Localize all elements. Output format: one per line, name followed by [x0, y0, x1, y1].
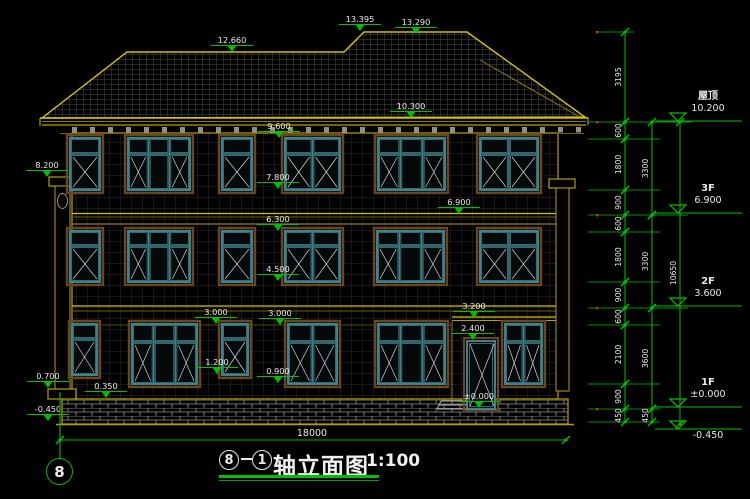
dim-ref-dot [596, 31, 598, 33]
elevation-value: 10.300 [397, 101, 426, 111]
dim-value-inner: 3195 [614, 67, 623, 86]
storey-elevation: 6.900 [694, 195, 721, 206]
elevation-value: 2.400 [461, 323, 484, 333]
elevation-value: 0.700 [36, 371, 59, 381]
elevation-drawing-canvas: 3195600180090060018009006002100900450330… [0, 0, 750, 499]
window [502, 321, 545, 387]
window [374, 228, 447, 285]
window-frame [378, 138, 445, 190]
storey-name: 1F [701, 377, 715, 388]
window [67, 228, 103, 285]
window [285, 321, 340, 387]
downspout-left [55, 186, 70, 389]
window [477, 228, 541, 285]
elevation-value: 3.000 [204, 307, 227, 317]
dim-node [624, 31, 627, 34]
elevation-value: 0.350 [94, 381, 117, 391]
dim-node [624, 214, 627, 217]
elevation-value: 13.290 [402, 17, 431, 27]
dim-node [624, 189, 627, 192]
dim-value-inner: 1800 [614, 155, 623, 174]
dim-node [651, 214, 654, 217]
dim-node [565, 439, 568, 442]
window [477, 135, 541, 193]
elevation-value: 12.660 [218, 35, 247, 45]
pilaster-cap-right [549, 179, 575, 188]
window-frame [72, 324, 97, 375]
title-dash [241, 458, 252, 460]
dim-value-middle: 450 [641, 408, 650, 423]
elevation-value: 3.200 [462, 301, 485, 311]
dim-node [624, 324, 627, 327]
dim-node [651, 121, 654, 124]
elevation-value: 7.800 [266, 172, 289, 182]
storey-elevation: 3.600 [694, 288, 721, 299]
dim-node [624, 383, 627, 386]
window-frame [128, 138, 190, 190]
cad-elevation-drawing: 3195600180090060018009006002100900450330… [0, 0, 750, 499]
title-underline-2 [219, 480, 379, 482]
dim-value-inner: 450 [614, 408, 623, 423]
dim-node [624, 408, 627, 411]
elevation-value: 4.500 [266, 264, 289, 274]
elevation-value: 13.395 [346, 14, 375, 24]
storey-triangle [670, 399, 686, 407]
storey-level-4: -0.450 [655, 421, 742, 441]
window [219, 228, 255, 285]
dim-node [624, 231, 627, 234]
elevation-value: 6.300 [266, 214, 289, 224]
elevation-value: -0.450 [35, 404, 61, 414]
storey-name: 3F [701, 183, 715, 194]
dim-value-inner: 2100 [614, 345, 623, 364]
window-frame [222, 138, 252, 190]
title-scale: 1:100 [366, 451, 420, 471]
dim-value-middle: 3600 [641, 349, 650, 368]
dim-value-middle: 3300 [641, 252, 650, 271]
dim-node [624, 281, 627, 284]
elevation-triangle [44, 415, 53, 422]
elevation-value: 0.900 [266, 366, 289, 376]
storey-triangle [670, 298, 686, 306]
axis-bubble-8: 8 [46, 458, 73, 485]
storey-triangle [670, 205, 686, 213]
window [375, 135, 448, 193]
dim-value-outer: 10650 [669, 261, 678, 285]
elevation-triangle [356, 25, 365, 32]
dim-value-inner: 600 [614, 309, 623, 324]
window [125, 135, 193, 193]
elevation-value: 8.200 [35, 160, 58, 170]
downspout-right [556, 188, 569, 391]
storey-triangle [670, 113, 686, 121]
window [129, 321, 200, 387]
elevation-marker-ridge_mid: 13.395 [339, 14, 381, 31]
pilaster-base-left [48, 389, 76, 399]
dim-value-inner: 900 [614, 288, 623, 303]
title-axis-bubble-start: 8 [219, 450, 239, 470]
elevation-value: 3.000 [268, 308, 291, 318]
window-frame [70, 231, 100, 282]
dim-ref-dot [596, 214, 598, 216]
roof [42, 32, 585, 118]
dim-node [651, 307, 654, 310]
window-frame [378, 324, 445, 384]
dim-ref-dot [596, 121, 598, 123]
dim-value-inner: 600 [614, 216, 623, 231]
dim-value-inner: 600 [614, 123, 623, 138]
dim-value-middle: 3300 [641, 159, 650, 178]
window-frame [377, 231, 444, 282]
dim-node [679, 423, 682, 426]
dim-ref-dot [596, 408, 598, 410]
storey-level-1: 3F6.900 [655, 183, 742, 213]
dim-value-inner: 1800 [614, 247, 623, 266]
window [219, 135, 255, 193]
storey-elevation: -0.450 [693, 430, 724, 441]
storey-name: 2F [701, 276, 715, 287]
storey-elevation: ±0.000 [690, 389, 725, 400]
dim-value-inner: 900 [614, 195, 623, 210]
dim-node [651, 408, 654, 411]
dim-value-inner: 900 [614, 389, 623, 404]
window [125, 228, 193, 285]
window [69, 321, 100, 378]
storey-triangle [670, 421, 686, 429]
window [282, 135, 343, 193]
elevation-triangle [43, 171, 52, 178]
elevation-triangle [228, 46, 237, 53]
window-frame [222, 231, 252, 282]
dim-node [624, 121, 627, 124]
dim-node [624, 307, 627, 310]
eave-dentils [60, 127, 584, 133]
window [67, 135, 103, 193]
dim-ref-dot [596, 307, 598, 309]
title-underline [219, 475, 379, 478]
window-frame [132, 324, 197, 384]
storey-elevation: 10.200 [691, 103, 724, 114]
overall-dim-value: 18000 [297, 428, 327, 439]
elevation-marker-ridge_left: 12.660 [211, 35, 253, 52]
window-frame [70, 138, 100, 190]
dim-node [624, 421, 627, 424]
title-axis-bubble-end: 1 [252, 450, 272, 470]
window [219, 321, 251, 378]
dim-node [624, 138, 627, 141]
dim-node [651, 421, 654, 424]
storey-level-3: 1F±0.000 [655, 377, 742, 407]
window [375, 321, 448, 387]
storey-name: 屋顶 [698, 90, 718, 102]
elevation-triangle [44, 382, 53, 389]
elevation-value: 6.900 [447, 197, 470, 207]
elevation-marker-eave_left: 8.200 [26, 160, 68, 177]
elevation-value: 1.200 [205, 357, 228, 367]
window [282, 228, 343, 285]
storey-level-0: 屋顶10.200 [655, 90, 742, 121]
elevation-value: 9.600 [267, 121, 290, 131]
window-frame [128, 231, 190, 282]
elevation-value: ±0.000 [464, 391, 494, 401]
